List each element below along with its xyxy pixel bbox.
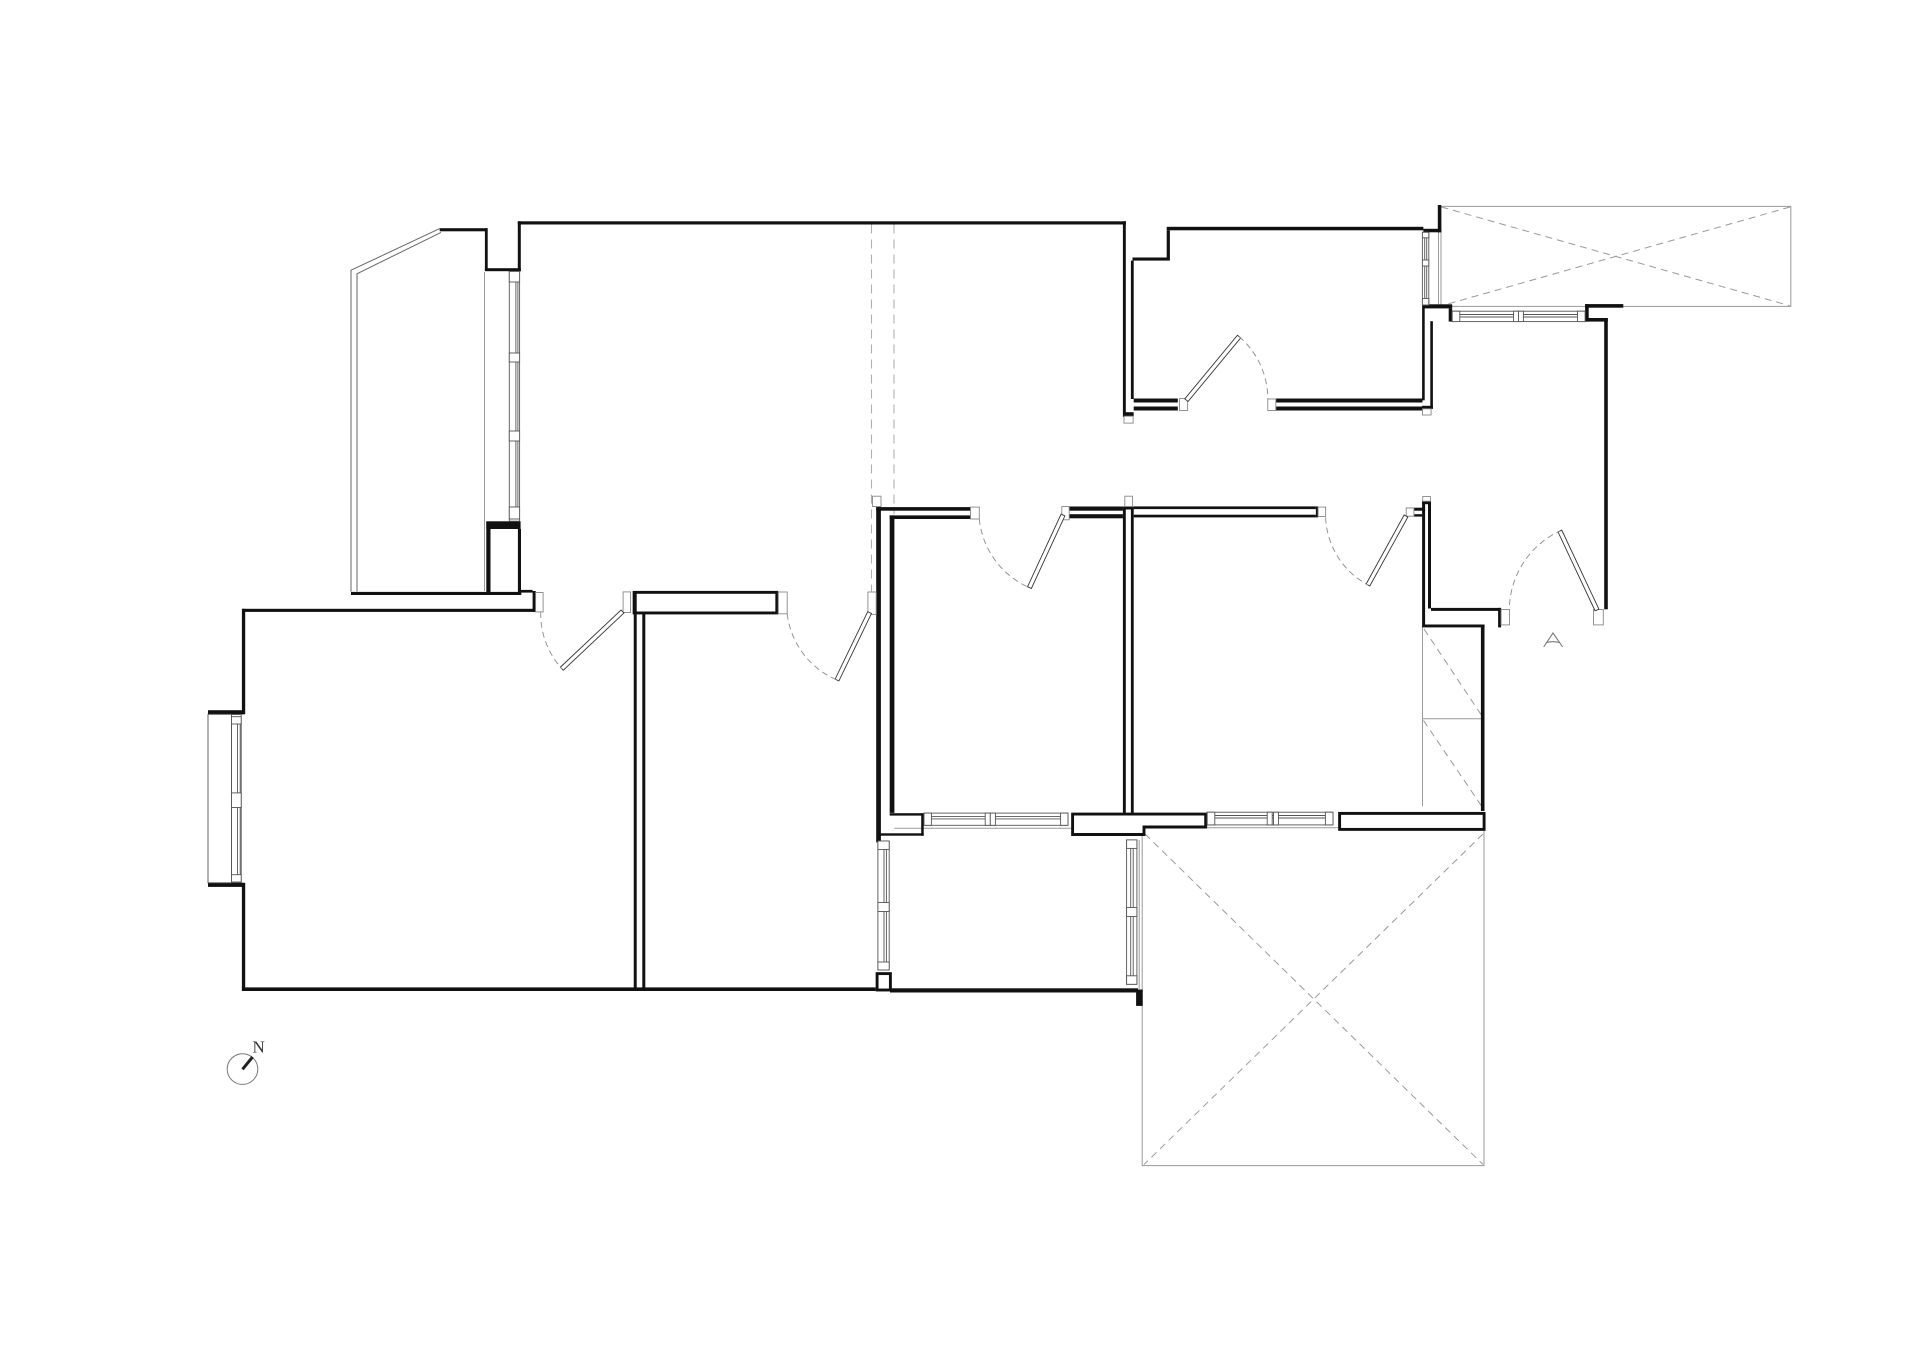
svg-text:N: N xyxy=(253,1038,265,1057)
